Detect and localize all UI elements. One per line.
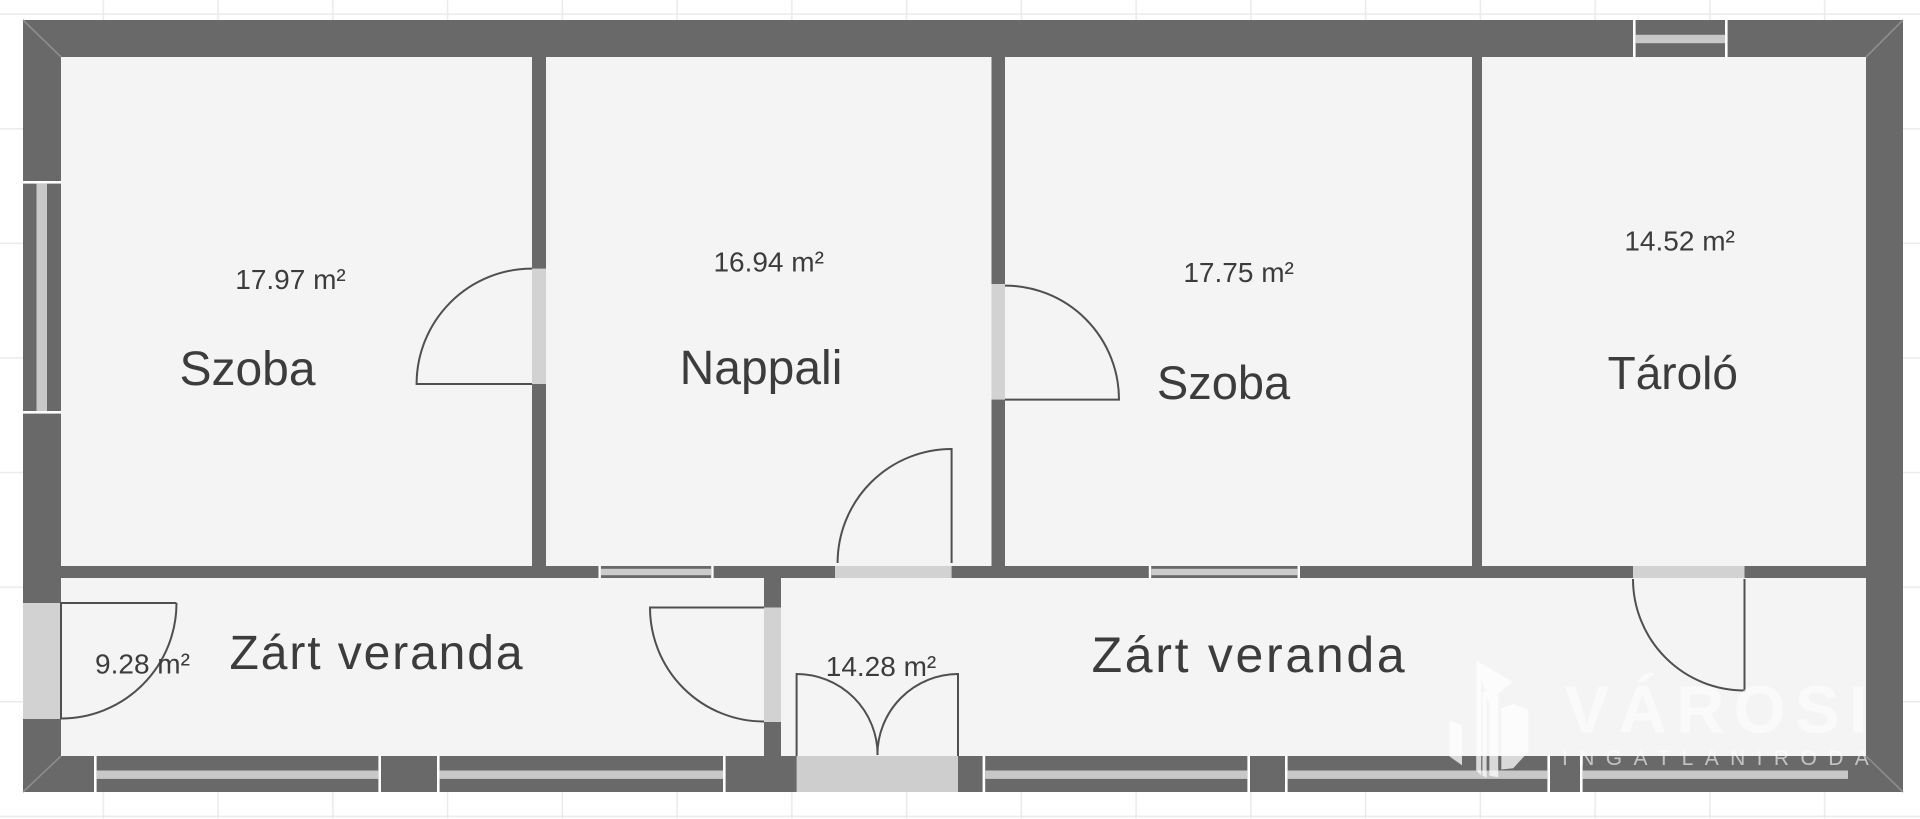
svg-text:Zárt veranda: Zárt veranda bbox=[230, 627, 525, 680]
svg-text:VÁROSI: VÁROSI bbox=[1565, 672, 1877, 747]
svg-text:9.28 m²: 9.28 m² bbox=[95, 649, 190, 680]
svg-text:17.75 m²: 17.75 m² bbox=[1183, 257, 1294, 288]
svg-text:Nappali: Nappali bbox=[680, 342, 843, 395]
svg-text:Zárt veranda: Zárt veranda bbox=[1092, 627, 1408, 683]
svg-text:Szoba: Szoba bbox=[179, 343, 315, 396]
svg-text:INGATLANIRODA: INGATLANIRODA bbox=[1562, 747, 1880, 770]
svg-text:14.28 m²: 14.28 m² bbox=[826, 651, 937, 682]
svg-text:14.52 m²: 14.52 m² bbox=[1624, 226, 1735, 257]
svg-text:Tároló: Tároló bbox=[1608, 347, 1738, 399]
svg-text:16.94 m²: 16.94 m² bbox=[713, 247, 824, 278]
svg-text:Szoba: Szoba bbox=[1157, 356, 1291, 409]
svg-text:17.97 m²: 17.97 m² bbox=[235, 264, 346, 295]
